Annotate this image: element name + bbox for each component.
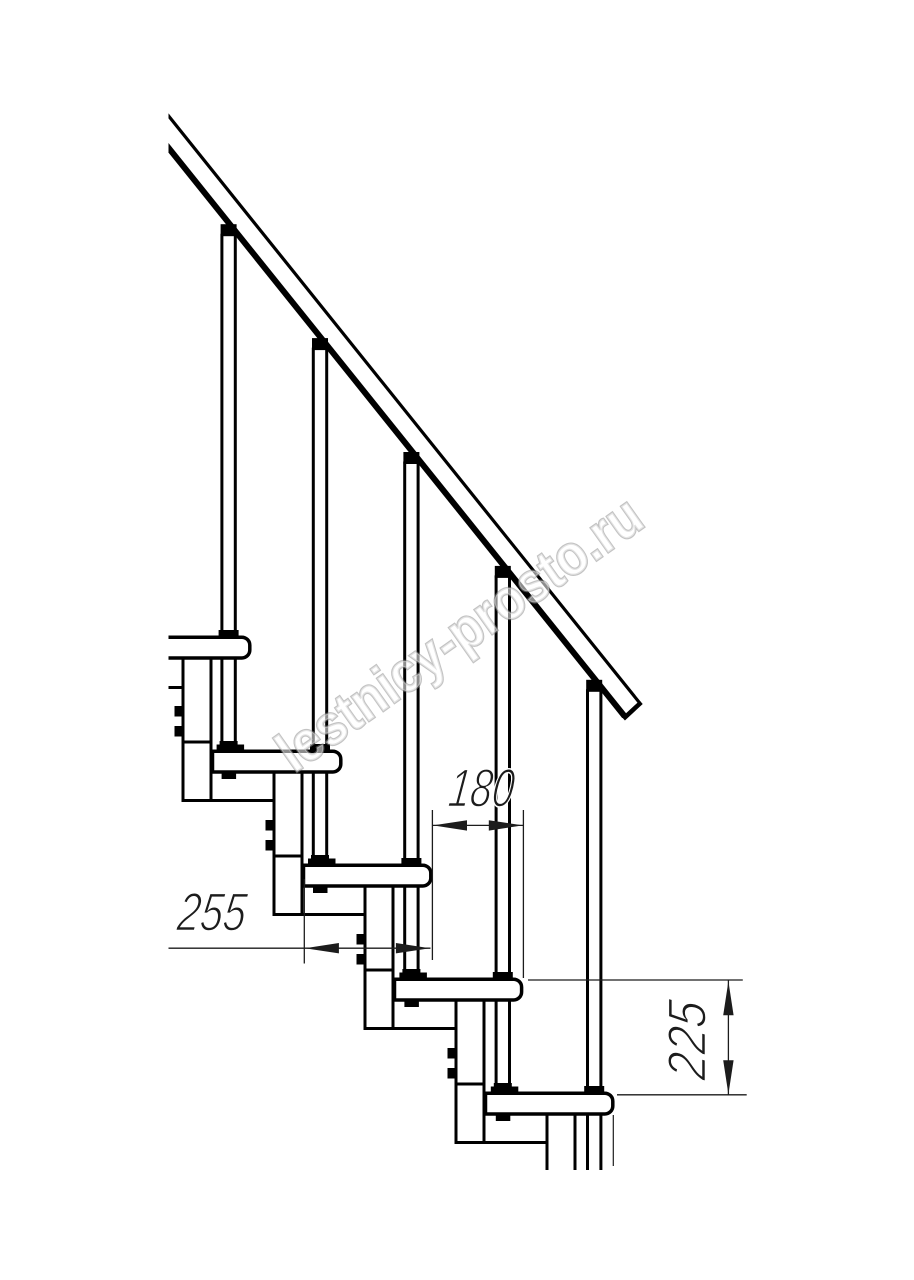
svg-text:180: 180 xyxy=(446,759,518,819)
svg-text:255: 255 xyxy=(174,883,251,943)
svg-text:225: 225 xyxy=(658,996,718,1083)
